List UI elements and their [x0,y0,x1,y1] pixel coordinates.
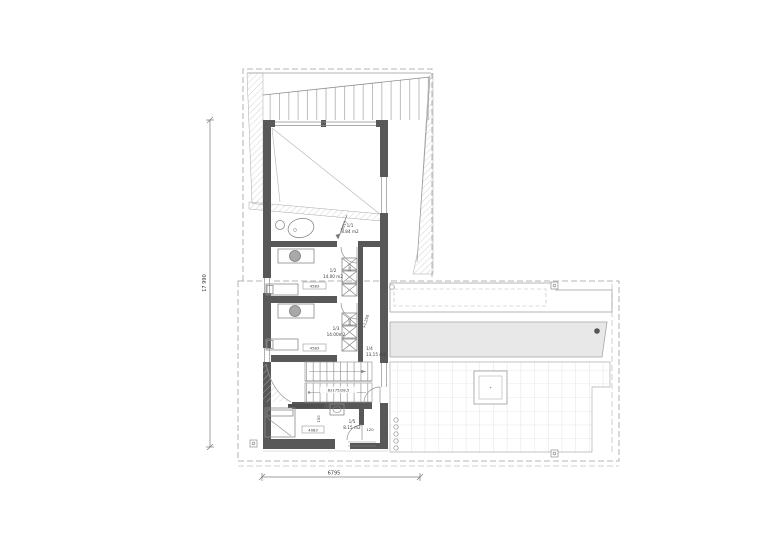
wall-top-mullion [321,120,326,127]
shelf-bar [288,404,324,408]
skylight-center-dot [490,387,492,389]
chair [290,306,301,317]
room-1-3-door-label: 300 [347,318,352,326]
wall-bath-bottom-stub [358,241,380,247]
wall-room2-room3 [263,296,337,303]
door-bath [341,247,357,263]
room-1-5-area: 8.15 m2 [343,425,361,430]
void-diagonal-1 [272,128,381,215]
room-1-2-id: 1/2 [330,268,337,273]
floor-plan-canvas: 5015 1/1 8.84 m2 1/2 14.00 m2 4583 300 1… [0,0,768,543]
room-1-4-area: 13,15 m2 [366,352,386,357]
wall-right-upper [380,120,388,177]
room-1-2-door-label: 300 [347,264,352,272]
dim-height-label: 17 990 [202,274,208,292]
wall-top-post-left [263,120,275,127]
room-1-5-width: 4083 [308,428,318,433]
room-1-1-id: 1/1 [347,223,354,228]
void-diagonal-2 [272,128,280,202]
drain-icon [294,229,297,232]
wall-room3-hall [263,355,337,362]
dim-vertical: 17 990 [202,117,214,450]
wall-right-middle [380,213,388,363]
hatch-wedge-left [247,73,263,205]
dim-horizontal: 6795 [259,471,423,482]
room-1-1-area: 8.84 m2 [341,229,359,234]
window-right-upper [380,177,388,213]
terrace [250,282,612,457]
room-1-2-width: 4583 [310,284,320,289]
room-1-3-id: 1/3 [333,326,340,331]
roof-overhang-dashed [394,289,546,306]
lap-pool [390,322,607,357]
fixture-label: 150 [316,415,321,423]
diagonal-dim-arrow [336,234,341,240]
drawing-page: 5015 1/1 8.84 m2 1/2 14.00 m2 4583 300 1… [0,0,768,543]
roof-overhang-outline [390,283,612,312]
wardrobe [342,258,357,296]
pool-drain-dot [594,328,600,334]
entry-hall [263,364,291,402]
dim-width-label: 6795 [328,471,341,477]
chair [290,251,301,262]
door-room3 [341,303,357,319]
stairs: 8x175/28,5 [305,362,372,402]
room-1-4-id: 1/4 [366,346,373,351]
room-1-1: 5015 1/1 8.84 m2 [276,215,360,240]
room-1-3-area: 14.00m2 [327,332,346,337]
stair-spec-label: 8x175/28,5 [328,388,350,393]
wall-bottom [263,439,335,449]
wall-right-lower [380,403,388,449]
terrace-door-glass [381,363,386,387]
room-1-3-width: 4583 [310,346,320,351]
room-1-2-area: 14.00 m2 [323,274,343,279]
wall-corridor [358,247,363,362]
room-1-5-door-label: 120 [366,427,374,432]
bathtub [286,216,315,240]
deck-boards [263,77,430,120]
room-1-5-id: 1/5 [349,419,356,424]
wall-bath-bottom [263,241,337,247]
washbasin [276,221,285,230]
